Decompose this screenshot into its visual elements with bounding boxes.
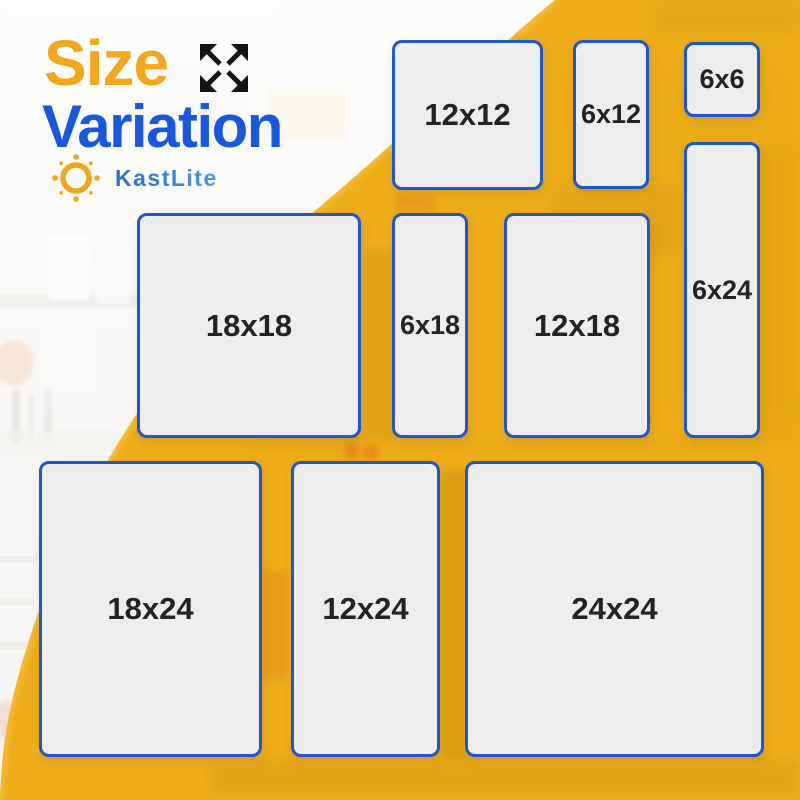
size-card-label: 6x18	[400, 310, 460, 341]
size-card-label: 6x24	[692, 275, 752, 306]
size-card-label: 12x12	[424, 97, 510, 133]
size-card-label: 6x12	[581, 99, 641, 130]
size-card-12x24: 12x24	[291, 461, 440, 757]
size-card-6x24: 6x24	[684, 142, 760, 438]
size-cards-layer: 12x126x126x66x2418x186x1812x1818x2412x24…	[0, 0, 800, 800]
size-card-12x18: 12x18	[504, 213, 650, 438]
size-card-6x12: 6x12	[573, 40, 649, 189]
size-card-label: 12x18	[534, 308, 620, 344]
size-card-24x24: 24x24	[465, 461, 764, 757]
size-card-18x24: 18x24	[39, 461, 262, 757]
size-card-6x18: 6x18	[392, 213, 468, 438]
size-card-label: 6x6	[699, 64, 744, 95]
size-card-label: 18x24	[107, 591, 193, 627]
size-card-label: 24x24	[571, 591, 657, 627]
size-card-label: 12x24	[322, 591, 408, 627]
size-card-12x12: 12x12	[392, 40, 543, 190]
size-card-label: 18x18	[206, 308, 292, 344]
size-card-6x6: 6x6	[684, 42, 760, 117]
size-card-18x18: 18x18	[137, 213, 361, 438]
